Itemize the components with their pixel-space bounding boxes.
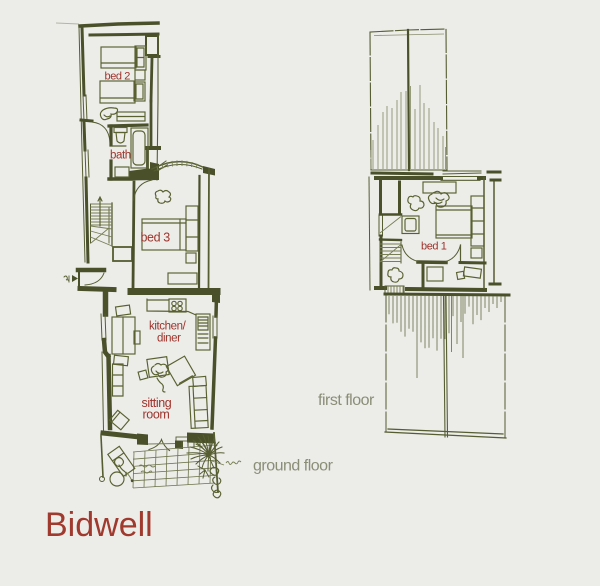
svg-text:bath: bath: [110, 150, 131, 162]
svg-text:bed 3: bed 3: [141, 231, 171, 245]
svg-text:bed 1: bed 1: [421, 241, 447, 253]
svg-text:first floor: first floor: [318, 392, 375, 409]
svg-text:diner: diner: [157, 333, 181, 345]
svg-text:ground floor: ground floor: [253, 458, 334, 475]
svg-text:room: room: [143, 408, 170, 422]
svg-text:Bidwell: Bidwell: [45, 506, 153, 544]
svg-text:bed 2: bed 2: [105, 71, 131, 83]
svg-text:kitchen/: kitchen/: [149, 321, 187, 333]
